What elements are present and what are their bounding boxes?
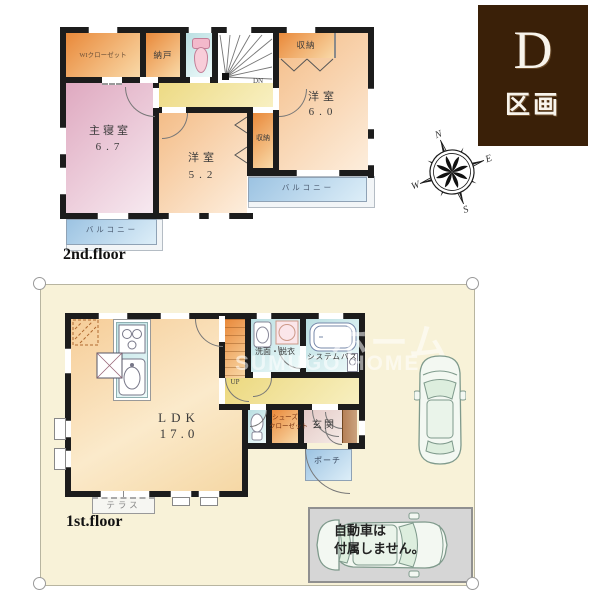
room-label: 洋室 [293, 91, 353, 103]
stairs-dn-label: DN [248, 78, 268, 86]
compass-w: W [410, 179, 423, 193]
room-size: 5.2 [173, 169, 233, 181]
floor-plan-image: DN WIクローゼ [0, 0, 613, 602]
room-size: 17.0 [148, 427, 210, 441]
window [97, 213, 129, 219]
closet-line [334, 33, 336, 58]
parking-note: 自動車は 付属しません。 [334, 522, 454, 558]
window [98, 313, 128, 319]
compass-rose: N E S W [407, 127, 497, 217]
sliding-door [102, 77, 122, 85]
window [368, 138, 374, 166]
room-label: 収納 [285, 41, 327, 50]
stove-icon [118, 324, 146, 354]
room-label: 収納 [249, 135, 277, 143]
folding-door-icon [280, 58, 334, 73]
balcony-label: バルコニー [72, 226, 152, 234]
car-icon [414, 353, 466, 467]
window [286, 27, 316, 33]
room-label: クローゼット [269, 423, 301, 430]
window [368, 88, 374, 130]
room-label: 洗面・脱衣 [250, 348, 300, 357]
window [226, 27, 252, 33]
washbasin-icon [253, 321, 272, 348]
parking-note-line1: 自動車は [334, 522, 454, 540]
shutter-box [54, 448, 66, 470]
room-label: WIクローゼット [68, 52, 138, 59]
balcony-label: バルコニー [268, 184, 348, 192]
stairs-down-2f [218, 33, 273, 83]
door-opening [140, 77, 158, 83]
boundary-marker [33, 277, 46, 290]
parking-note-line2: 付属しません。 [334, 540, 454, 558]
room-label: テラス [92, 501, 155, 510]
room-label: 玄関 [306, 420, 342, 431]
room-label: シューズ [271, 414, 299, 421]
room-label: システムバス [306, 353, 359, 361]
compass-e: E [483, 153, 493, 166]
door-leaf [200, 497, 218, 506]
room-size: 6.7 [80, 141, 140, 153]
washing-machine-icon [275, 320, 299, 345]
shutter-box [54, 418, 66, 440]
window [208, 213, 230, 219]
kitchen-table [96, 352, 123, 379]
room-label: LDK [148, 411, 210, 425]
window [256, 313, 272, 319]
shoe-cabinet [342, 410, 357, 443]
stair-newel [222, 73, 229, 80]
room-label: ポーチ [305, 457, 350, 466]
boundary-marker [33, 577, 46, 590]
refrigerator-space-mark [72, 319, 99, 346]
folding-door-icon [234, 116, 248, 168]
balcony-door [296, 170, 340, 176]
window [168, 213, 200, 219]
wall [242, 404, 248, 497]
stairs-up-label: UP [225, 379, 245, 387]
lot-badge: D 区画 [478, 5, 588, 146]
room-label: 洋室 [173, 152, 233, 164]
wall [219, 404, 362, 410]
boundary-marker [466, 277, 479, 290]
lot-letter: D [478, 23, 588, 77]
compass-s: S [462, 204, 470, 216]
window [65, 348, 71, 374]
lot-label: 区画 [478, 85, 588, 121]
window [188, 27, 212, 33]
floor-title-2f: 2nd.floor [63, 246, 143, 264]
floor-title-1f: 1st.floor [66, 513, 146, 531]
window [60, 167, 66, 195]
door-opening [190, 77, 210, 83]
window [359, 420, 365, 436]
wall [348, 443, 365, 449]
wall [180, 33, 186, 77]
room-label: 主寝室 [80, 125, 140, 137]
door-leaf [172, 497, 190, 506]
window [160, 313, 190, 319]
wall [212, 33, 218, 83]
compass-n: N [433, 128, 445, 141]
room-label: 納戸 [146, 51, 180, 60]
room-size: 6.0 [293, 106, 353, 118]
boundary-marker [466, 577, 479, 590]
hall-2f [146, 83, 273, 107]
window [88, 27, 118, 33]
window [60, 127, 66, 155]
wall [242, 443, 307, 449]
